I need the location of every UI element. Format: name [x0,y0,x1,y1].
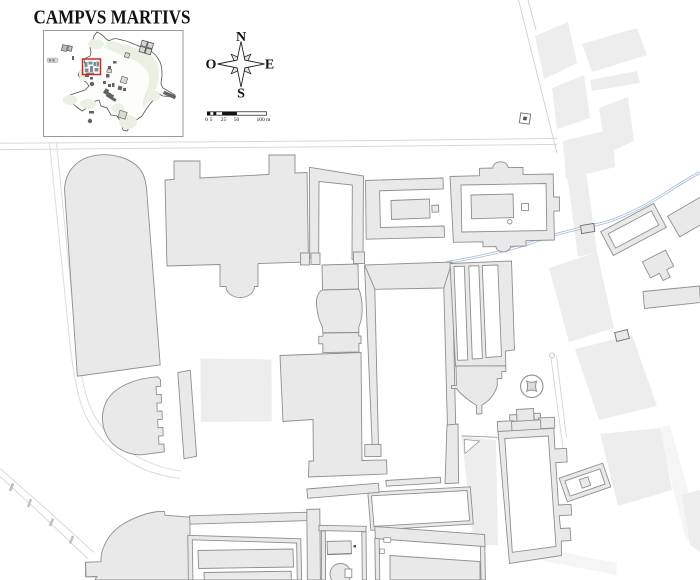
svg-text:N: N [236,30,246,45]
svg-text:O: O [206,58,217,73]
svg-text:0: 0 [205,117,208,123]
svg-text:5: 5 [210,117,213,123]
svg-text:CAMPVS MARTIVS: CAMPVS MARTIVS [34,7,191,29]
svg-text:25: 25 [221,117,227,123]
svg-text:S: S [237,87,245,102]
svg-text:100 m: 100 m [257,117,272,123]
svg-text:E: E [265,58,274,73]
svg-text:50: 50 [234,117,240,123]
